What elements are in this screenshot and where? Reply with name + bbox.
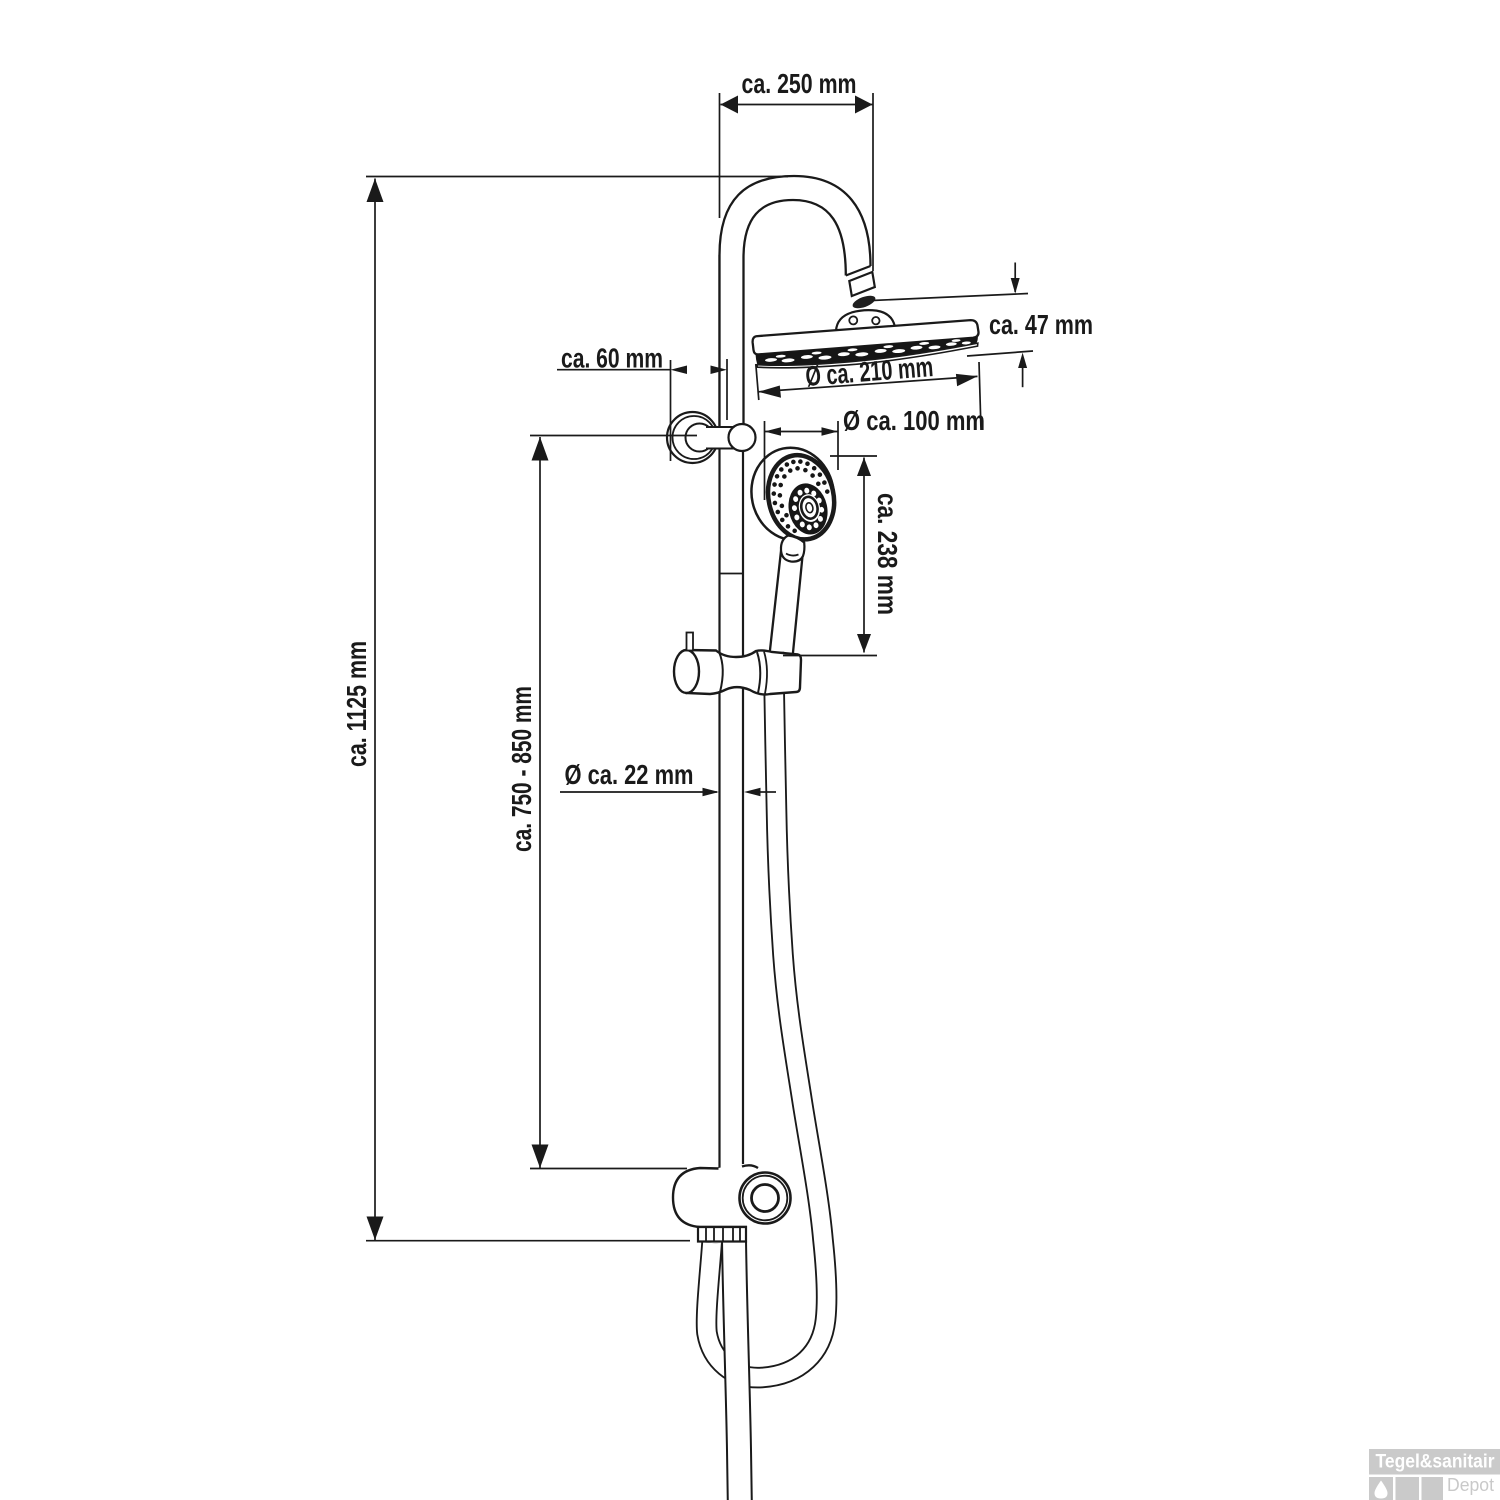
svg-text:ca. 250 mm: ca. 250 mm [742,68,857,99]
svg-text:Tegel&sanitair: Tegel&sanitair [1376,1451,1495,1473]
svg-text:ca. 750 - 850 mm: ca. 750 - 850 mm [506,686,537,852]
svg-text:ca. 47 mm: ca. 47 mm [989,309,1093,340]
svg-text:Depot: Depot [1447,1474,1494,1495]
svg-text:ca. 238 mm: ca. 238 mm [872,493,903,615]
svg-text:ca. 1125 mm: ca. 1125 mm [341,641,372,767]
svg-text:Ø ca. 100 mm: Ø ca. 100 mm [843,405,985,436]
svg-text:ca. 60 mm: ca. 60 mm [561,343,663,374]
svg-text:Ø ca. 22 mm: Ø ca. 22 mm [565,759,694,790]
